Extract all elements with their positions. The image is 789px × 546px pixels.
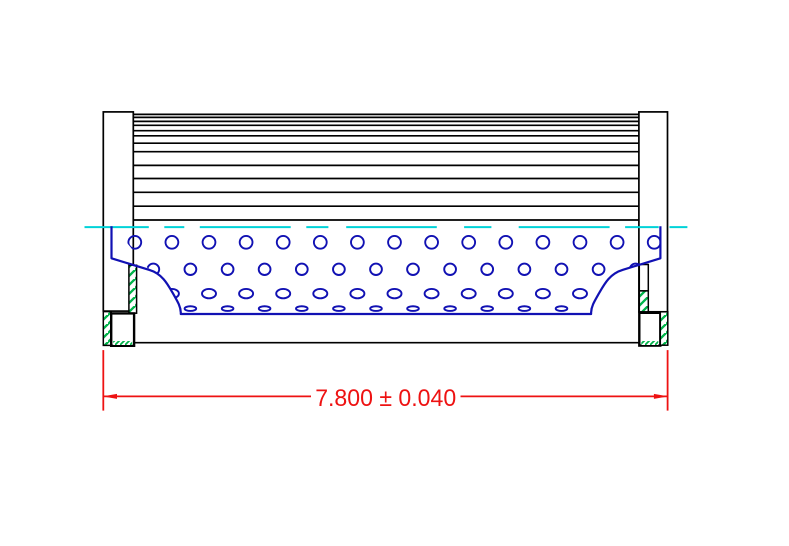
svg-text:7.800 ± 0.040: 7.800 ± 0.040 [315,385,456,412]
